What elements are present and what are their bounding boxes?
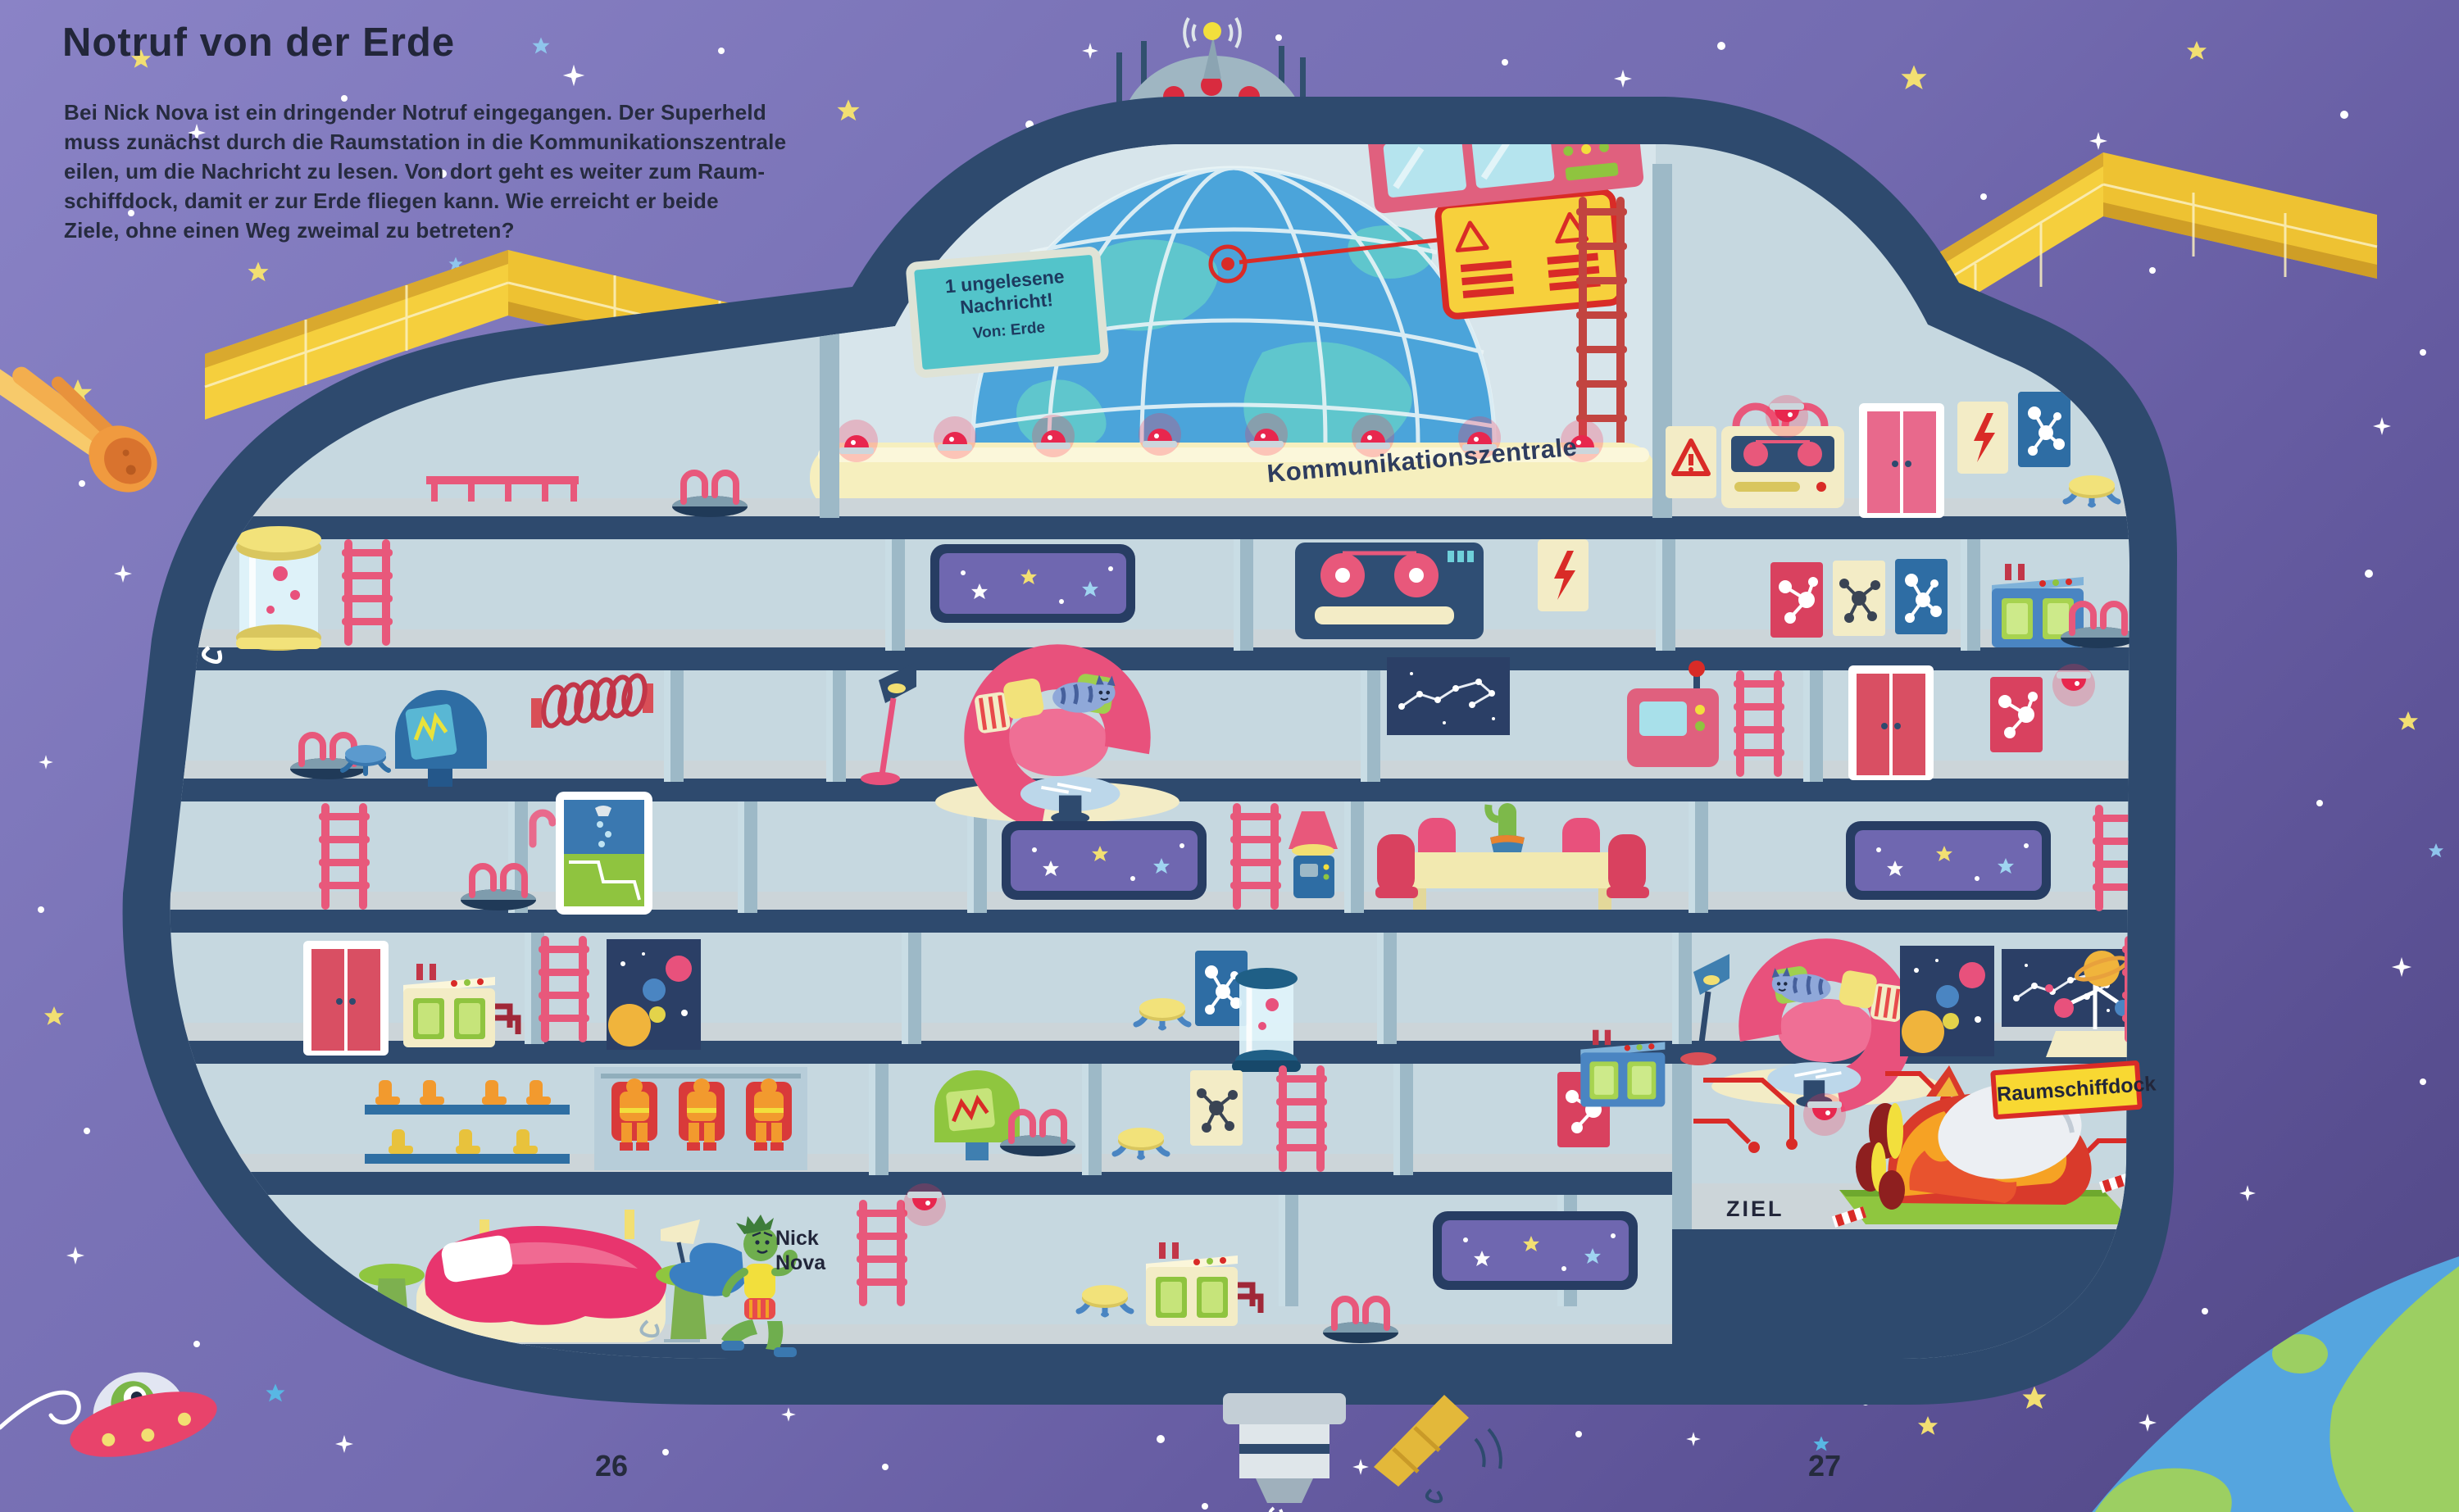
comet-top-left	[0, 335, 170, 506]
alarm-light-icon	[903, 1183, 946, 1226]
planets-poster-icon	[1900, 946, 1994, 1056]
warning-poster-icon	[1666, 426, 1716, 498]
molecule-poster-icon	[2018, 392, 2070, 467]
page-number-left: 26	[595, 1449, 628, 1483]
hero-suit-icon	[611, 1078, 657, 1151]
page-number-right: 27	[1808, 1449, 1841, 1483]
starfield-window	[1002, 821, 1207, 900]
molecule-poster-icon	[1895, 559, 1948, 634]
starfield-window	[930, 544, 1135, 623]
intro-line: Ziele, ohne einen Weg zweimal zu betrete…	[64, 218, 515, 243]
chair-icon	[1607, 834, 1649, 898]
alarm-light-icon	[835, 420, 878, 462]
alarm-light-icon	[1803, 1093, 1846, 1136]
alarm-light-icon	[1766, 395, 1808, 438]
reel-machine	[1295, 543, 1484, 639]
glass-tank	[1232, 968, 1301, 1072]
ufo	[0, 1355, 223, 1470]
hero-name-label: NickNova	[775, 1226, 825, 1275]
starfield-window	[1846, 821, 2051, 900]
planets-poster-icon	[607, 939, 701, 1050]
intro-line: eilen, um die Nachricht zu lesen. Von do…	[64, 159, 765, 184]
intro-line: Bei Nick Nova ist ein dringender Notruf …	[64, 100, 766, 125]
intro-line: muss zunächst durch die Raumstation in d…	[64, 129, 786, 155]
molecule-poster-icon	[1190, 1070, 1243, 1146]
wardrobe-hero-suits	[594, 1067, 807, 1170]
book-page: Notruf von der Erde Bei Nick Nova ist ei…	[0, 0, 2459, 1512]
message-screen: 1 ungelesene Nachricht! Von: Erde	[905, 246, 1109, 379]
thruster	[1223, 1393, 1346, 1512]
double-door-icon	[303, 941, 389, 1056]
double-door-icon	[1848, 665, 1934, 780]
page-title: Notruf von der Erde	[62, 20, 455, 66]
molecule-poster-icon	[1990, 677, 2043, 752]
lightning-sign-icon	[1957, 402, 2008, 474]
molecule-poster-icon	[1770, 562, 1823, 638]
dock-sign: Raumschiffdock	[1990, 1060, 2143, 1120]
starfield-window	[1433, 1211, 1638, 1290]
alarm-light-icon	[2052, 664, 2095, 706]
shower-cabin	[556, 792, 652, 915]
goal-label: ZIEL	[1726, 1196, 1784, 1222]
dish-antenna-icon	[1374, 1395, 1501, 1501]
hero-suit-icon	[679, 1078, 725, 1151]
constellation-poster-icon	[1387, 657, 1510, 735]
intro-line: schiffdock, damit er zur Erde fliegen ka…	[64, 188, 719, 214]
molecule-poster-icon	[1833, 561, 1885, 636]
hero-suit-icon	[746, 1078, 792, 1151]
double-door-icon	[1859, 403, 1944, 518]
lightning-sign-icon	[1538, 539, 1589, 611]
chair-icon	[1375, 834, 1418, 898]
